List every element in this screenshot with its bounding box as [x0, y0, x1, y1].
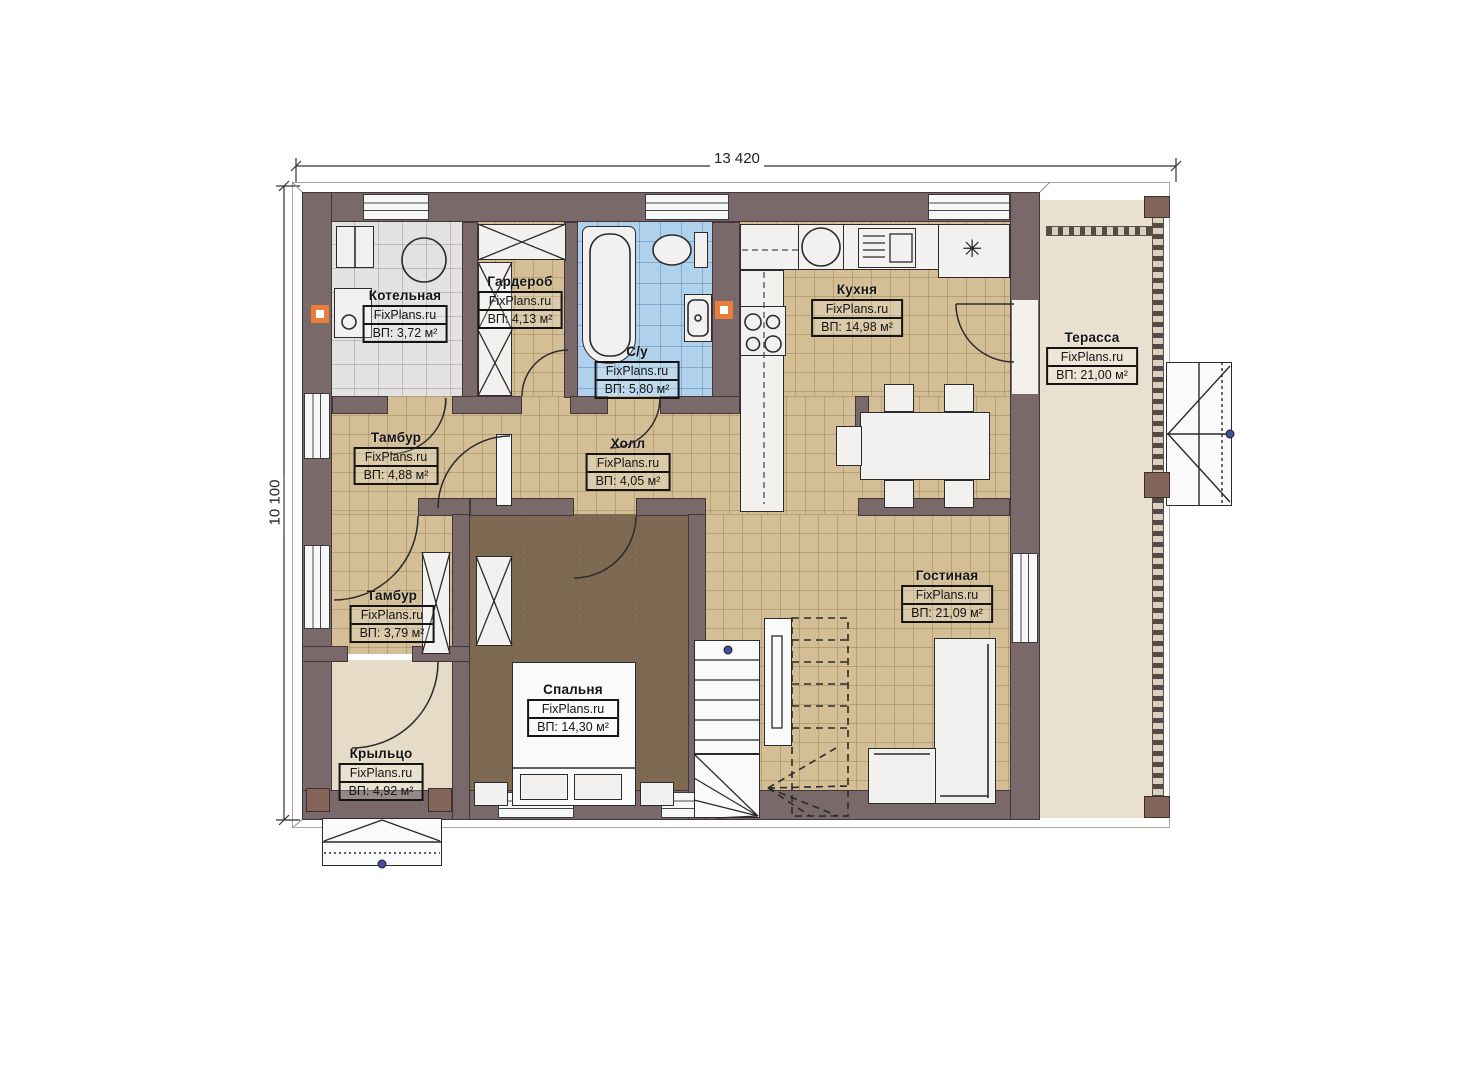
- room-name: Спальня: [527, 682, 619, 697]
- dimension-width-label: 13 420: [710, 150, 764, 167]
- brand-label: FixPlans.ru: [356, 449, 437, 465]
- room-label-wardrobe: Гардероб FixPlans.ru ВП: 4,13 м²: [478, 274, 563, 329]
- area-label: ВП: 4,88 м²: [356, 465, 437, 483]
- window-living-terrace: [1012, 553, 1038, 643]
- area-label: ВП: 14,98 м²: [813, 317, 901, 335]
- nightstand: [640, 782, 674, 806]
- room-info-box: FixPlans.ru ВП: 3,79 м²: [350, 605, 435, 643]
- room-info-box: FixPlans.ru ВП: 4,92 м²: [339, 763, 424, 801]
- room-label-vestibule1: Тамбур FixPlans.ru ВП: 4,88 м²: [354, 430, 439, 485]
- brand-label: FixPlans.ru: [1048, 349, 1136, 365]
- room-name: Гостиная: [901, 568, 993, 583]
- area-label: ВП: 4,13 м²: [480, 309, 561, 327]
- room-info-box: FixPlans.ru ВП: 4,88 м²: [354, 447, 439, 485]
- room-label-bathroom: С/у FixPlans.ru ВП: 5,80 м²: [595, 344, 680, 399]
- railing-post: [1144, 472, 1170, 498]
- room-label-hall: Холл FixPlans.ru ВП: 4,05 м²: [586, 436, 671, 491]
- terrace-steps: [1166, 362, 1232, 506]
- room-name: Терасса: [1046, 330, 1138, 345]
- floor-terrace: [1040, 200, 1152, 818]
- vent-marker-bathroom: [715, 301, 733, 319]
- hob: [740, 306, 786, 356]
- chair: [944, 480, 974, 508]
- door-opening-kitchen-terrace: [1012, 300, 1038, 394]
- stairs-winder: [694, 754, 760, 818]
- area-label: ВП: 4,05 м²: [588, 471, 669, 489]
- brand-label: FixPlans.ru: [365, 307, 446, 323]
- terrace-railing-right: [1152, 200, 1164, 818]
- dining-table: [860, 412, 990, 480]
- window-top-boiler: [363, 194, 429, 220]
- area-label: ВП: 3,72 м²: [365, 323, 446, 341]
- railing-post: [1144, 796, 1170, 818]
- wall-house-terrace: [1010, 192, 1040, 820]
- wall-row2-b: [470, 498, 574, 516]
- chair: [884, 384, 914, 412]
- railing-post: [1144, 196, 1170, 218]
- wall-row1-a: [332, 396, 388, 414]
- room-label-living: Гостиная FixPlans.ru ВП: 21,09 м²: [901, 568, 993, 623]
- fridge-snowflake-icon: ✳: [962, 238, 982, 262]
- area-label: ВП: 21,09 м²: [903, 603, 991, 621]
- terrace-railing-top: [1046, 226, 1152, 236]
- room-label-vestibule2: Тамбур FixPlans.ru ВП: 3,79 м²: [350, 588, 435, 643]
- brand-label: FixPlans.ru: [480, 293, 561, 309]
- pillow: [574, 774, 622, 800]
- room-label-bedroom: Спальня FixPlans.ru ВП: 14,30 м²: [527, 682, 619, 737]
- brand-label: FixPlans.ru: [588, 455, 669, 471]
- room-name: Кухня: [811, 282, 903, 297]
- wall-row2-d: [858, 498, 1010, 516]
- window-left-vestibule2: [304, 545, 330, 629]
- room-info-box: FixPlans.ru ВП: 4,05 м²: [586, 453, 671, 491]
- wall-row1-b: [452, 396, 522, 414]
- door-leaf-hall: [496, 434, 512, 506]
- stairs-divider-wall: [764, 618, 792, 746]
- brand-label: FixPlans.ru: [352, 607, 433, 623]
- dimension-height-label: 10 100: [266, 476, 283, 530]
- brand-label: FixPlans.ru: [813, 301, 901, 317]
- stove-oven: [858, 228, 916, 268]
- room-info-box: FixPlans.ru ВП: 21,00 м²: [1046, 347, 1138, 385]
- wall-wardrobe-bathroom: [564, 222, 578, 398]
- wall-porch-top-a: [302, 646, 348, 662]
- vent-marker-left: [311, 305, 329, 323]
- brand-label: FixPlans.ru: [903, 587, 991, 603]
- kitchen-sink-frame: [798, 224, 844, 270]
- toilet-tank: [694, 232, 708, 268]
- wall-bedroom-left: [452, 514, 470, 820]
- washing-machine: [336, 226, 374, 268]
- room-label-boiler: Котельная FixPlans.ru ВП: 3,72 м²: [363, 288, 448, 343]
- window-left-vestibule1: [304, 393, 330, 459]
- area-label: ВП: 14,30 м²: [529, 717, 617, 735]
- room-name: Крыльцо: [339, 746, 424, 761]
- brand-label: FixPlans.ru: [529, 701, 617, 717]
- room-label-porch: Крыльцо FixPlans.ru ВП: 4,92 м²: [339, 746, 424, 801]
- wall-boiler-wardrobe: [462, 222, 478, 398]
- chair: [884, 480, 914, 508]
- window-top-kitchen: [928, 194, 1010, 220]
- stairs-flight: [694, 640, 760, 754]
- room-info-box: FixPlans.ru ВП: 21,09 м²: [901, 585, 993, 623]
- area-label: ВП: 4,92 м²: [341, 781, 422, 799]
- pillow: [520, 774, 568, 800]
- porch-post-left: [306, 788, 330, 812]
- porch-steps: [322, 818, 442, 866]
- area-label: ВП: 5,80 м²: [597, 379, 678, 397]
- brand-label: FixPlans.ru: [341, 765, 422, 781]
- brand-label: FixPlans.ru: [597, 363, 678, 379]
- sofa-section-chaise: [868, 748, 936, 804]
- wardrobe-cabinet-top: [478, 224, 566, 260]
- area-label: ВП: 3,79 м²: [352, 623, 433, 641]
- room-name: Гардероб: [478, 274, 563, 289]
- porch-post-right: [428, 788, 452, 812]
- window-top-bathroom: [645, 194, 729, 220]
- chair: [944, 384, 974, 412]
- room-name: Холл: [586, 436, 671, 451]
- bathroom-sink: [684, 294, 712, 342]
- room-name: С/у: [595, 344, 680, 359]
- room-label-kitchen: Кухня FixPlans.ru ВП: 14,98 м²: [811, 282, 903, 337]
- room-name: Котельная: [363, 288, 448, 303]
- room-info-box: FixPlans.ru ВП: 5,80 м²: [595, 361, 680, 399]
- room-info-box: FixPlans.ru ВП: 4,13 м²: [478, 291, 563, 329]
- area-label: ВП: 21,00 м²: [1048, 365, 1136, 383]
- room-label-terrace: Терасса FixPlans.ru ВП: 21,00 м²: [1046, 330, 1138, 385]
- floor-plan-canvas: ✳: [0, 0, 1473, 1080]
- room-info-box: FixPlans.ru ВП: 3,72 м²: [363, 305, 448, 343]
- room-name: Тамбур: [354, 430, 439, 445]
- room-info-box: FixPlans.ru ВП: 14,30 м²: [527, 699, 619, 737]
- sofa-section-vertical: [934, 638, 996, 804]
- chair: [836, 426, 862, 466]
- nightstand: [474, 782, 508, 806]
- bedroom-wardrobe: [476, 556, 512, 646]
- wall-exterior-left: [302, 192, 332, 820]
- room-name: Тамбур: [350, 588, 435, 603]
- room-info-box: FixPlans.ru ВП: 14,98 м²: [811, 299, 903, 337]
